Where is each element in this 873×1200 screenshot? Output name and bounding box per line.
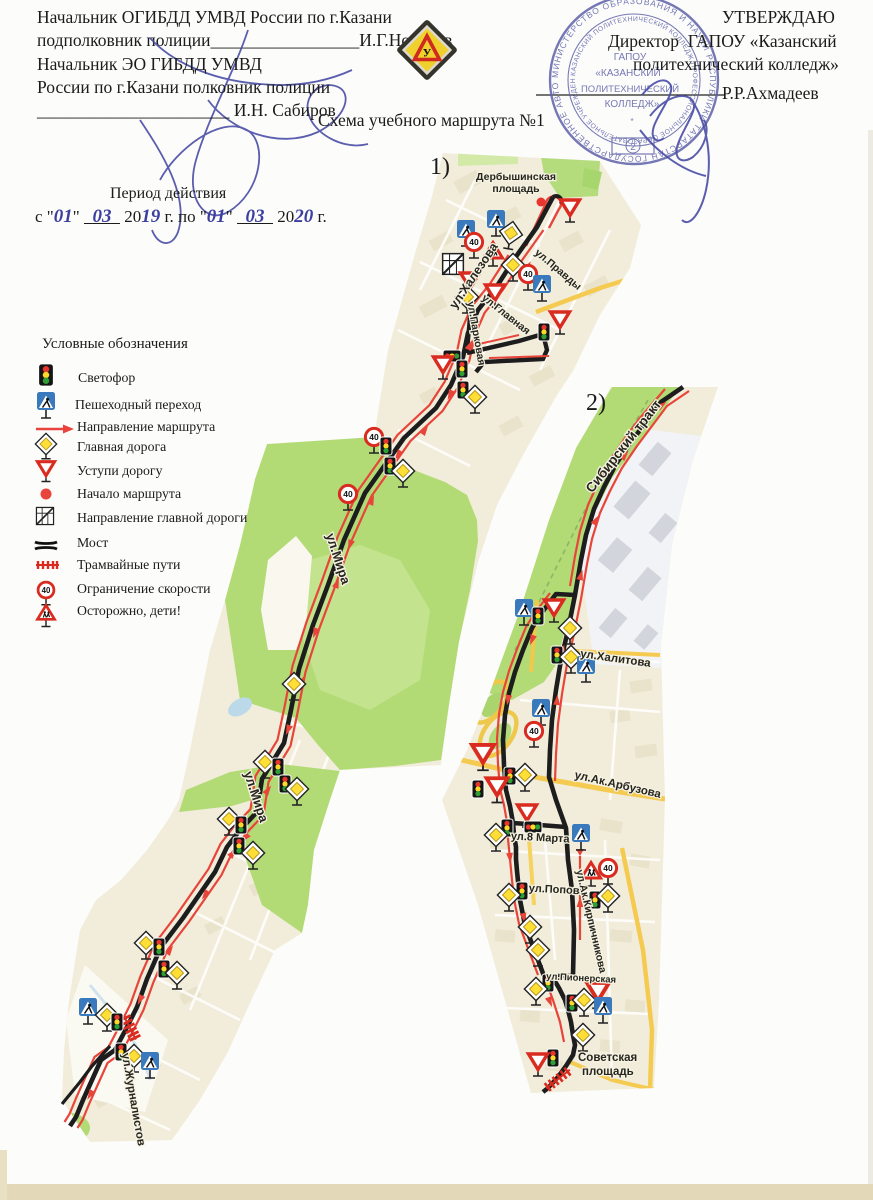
svg-text:2: 2 — [630, 142, 636, 153]
svg-text:площадь: площадь — [582, 1066, 634, 1078]
svg-text:ПОЛИТЕХНИЧЕСКИЙ: ПОЛИТЕХНИЧЕСКИЙ — [581, 83, 679, 95]
svg-text:Дербышинская: Дербышинская — [476, 171, 556, 183]
svg-text:площадь: площадь — [492, 183, 540, 195]
svg-text:КОЛЛЕДЖ»: КОЛЛЕДЖ» — [605, 99, 660, 110]
svg-text:1): 1) — [430, 154, 450, 180]
svg-text:Советская: Советская — [578, 1052, 637, 1064]
svg-text:*: * — [630, 117, 633, 126]
svg-text:У: У — [423, 46, 432, 60]
svg-text:2): 2) — [586, 390, 606, 416]
